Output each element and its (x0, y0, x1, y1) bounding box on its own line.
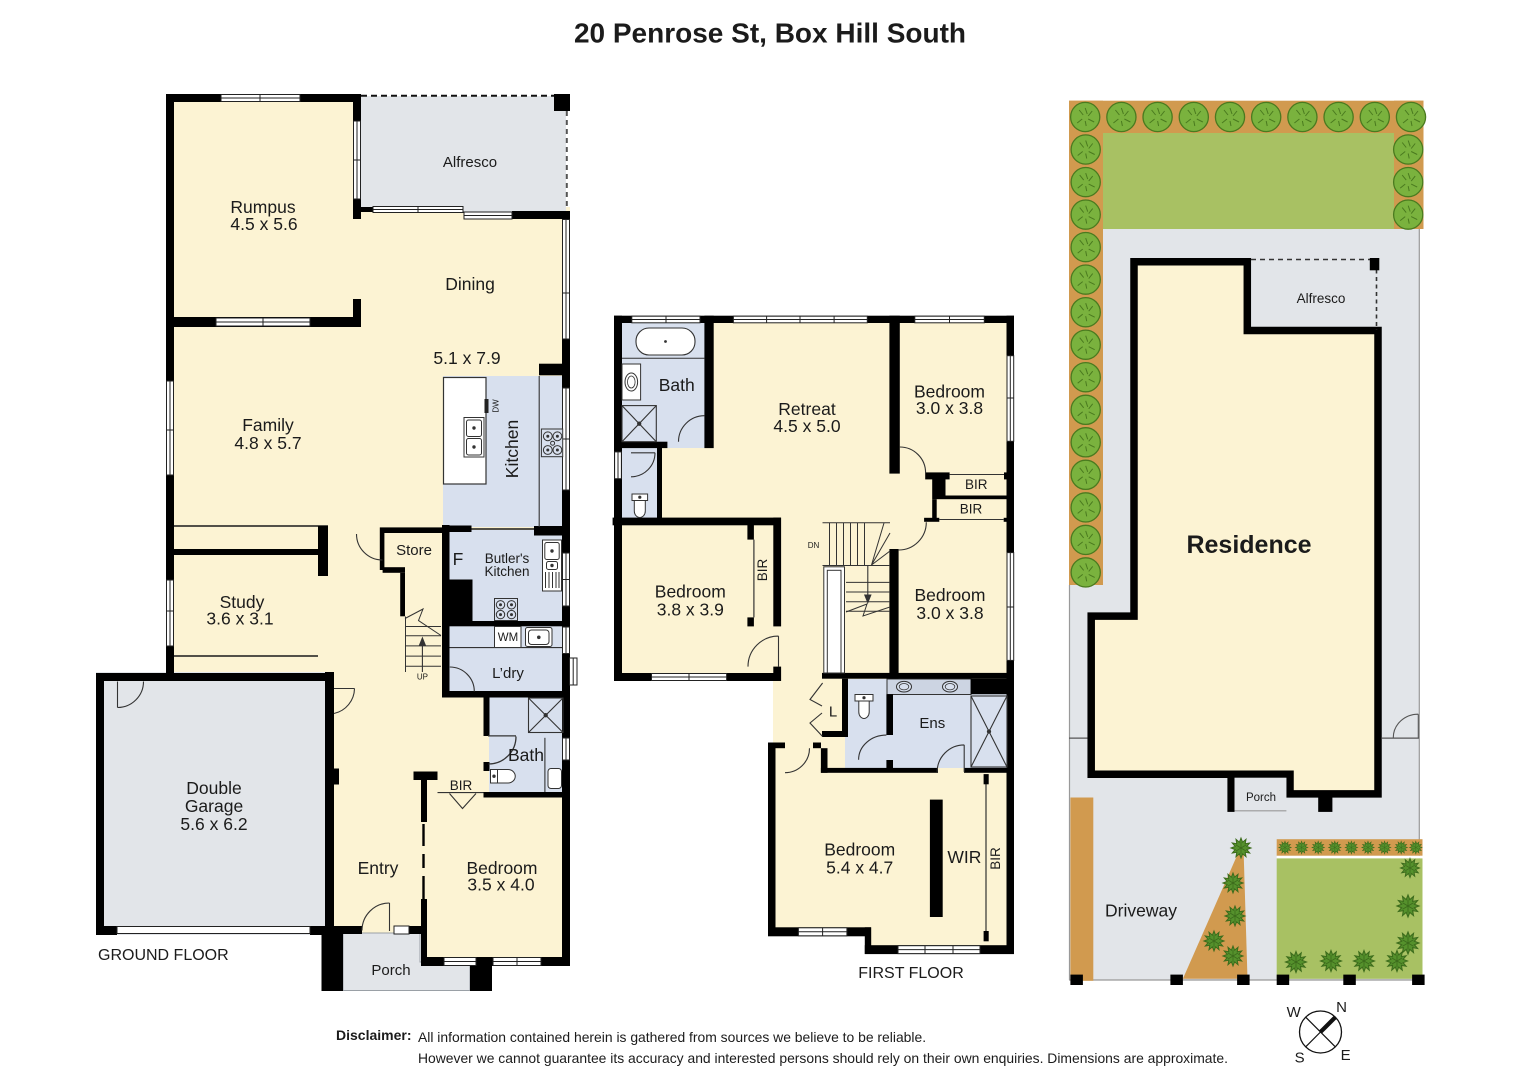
svg-text:Garage: Garage (185, 796, 243, 816)
svg-text:5.4 x 4.7: 5.4 x 4.7 (826, 858, 893, 878)
svg-text:Bath: Bath (659, 375, 695, 395)
svg-text:WM: WM (498, 632, 518, 644)
svg-text:Bedroom: Bedroom (824, 840, 895, 860)
svg-text:3.6 x 3.1: 3.6 x 3.1 (206, 609, 273, 629)
svg-text:L’dry: L’dry (492, 665, 524, 682)
svg-text:L: L (829, 704, 837, 721)
svg-text:Bedroom: Bedroom (655, 582, 726, 602)
svg-text:Alfresco: Alfresco (443, 154, 497, 171)
svg-text:GROUND FLOOR: GROUND FLOOR (98, 947, 229, 964)
svg-text:However we cannot guarantee it: However we cannot guarantee its accuracy… (418, 1050, 1228, 1066)
svg-text:3.5 x 4.0: 3.5 x 4.0 (467, 875, 534, 895)
svg-text:BIR: BIR (450, 778, 473, 793)
svg-text:Porch: Porch (1246, 792, 1276, 804)
svg-text:UP: UP (417, 673, 428, 682)
svg-text:W: W (1287, 1004, 1302, 1021)
svg-text:Ens: Ens (919, 715, 945, 732)
svg-text:Alfresco: Alfresco (1297, 291, 1346, 306)
svg-text:Store: Store (396, 542, 432, 559)
svg-text:Family: Family (242, 415, 294, 435)
svg-text:Double: Double (186, 778, 241, 798)
svg-text:4.8 x 5.7: 4.8 x 5.7 (234, 433, 301, 453)
svg-text:BIR: BIR (965, 477, 988, 492)
svg-text:F: F (453, 549, 464, 569)
svg-text:Kitchen: Kitchen (502, 420, 522, 478)
svg-text:4.5 x 5.0: 4.5 x 5.0 (773, 416, 840, 436)
svg-text:4.5 x 5.6: 4.5 x 5.6 (230, 214, 297, 234)
svg-text:Driveway: Driveway (1105, 901, 1177, 921)
svg-text:BIR: BIR (755, 559, 770, 582)
svg-text:S: S (1295, 1050, 1305, 1067)
svg-text:Disclaimer:: Disclaimer: (336, 1027, 411, 1043)
svg-text:DN: DN (808, 541, 820, 550)
svg-text:Residence: Residence (1186, 531, 1311, 559)
svg-text:3.8 x 3.9: 3.8 x 3.9 (657, 600, 724, 620)
svg-text:Bedroom: Bedroom (914, 585, 985, 605)
svg-text:Kitchen: Kitchen (484, 564, 529, 579)
svg-text:3.0 x 3.8: 3.0 x 3.8 (916, 603, 983, 623)
svg-text:WIR: WIR (947, 847, 981, 867)
svg-text:20 Penrose St, Box Hill South: 20 Penrose St, Box Hill South (574, 18, 966, 49)
svg-text:Porch: Porch (371, 962, 410, 979)
svg-text:Dining: Dining (445, 274, 495, 294)
svg-text:3.0 x 3.8: 3.0 x 3.8 (916, 398, 983, 418)
svg-text:E: E (1341, 1047, 1351, 1064)
svg-text:5.1 x 7.9: 5.1 x 7.9 (433, 348, 500, 368)
svg-text:5.6 x 6.2: 5.6 x 6.2 (180, 814, 247, 834)
svg-text:BIR: BIR (960, 502, 983, 517)
svg-text:Entry: Entry (358, 858, 399, 878)
svg-text:Bath: Bath (508, 745, 544, 765)
svg-text:BIR: BIR (988, 847, 1003, 870)
svg-text:DW: DW (492, 399, 501, 413)
svg-text:N: N (1336, 999, 1347, 1016)
svg-text:All information contained here: All information contained herein is gath… (418, 1029, 926, 1045)
svg-text:FIRST FLOOR: FIRST FLOOR (858, 965, 964, 982)
